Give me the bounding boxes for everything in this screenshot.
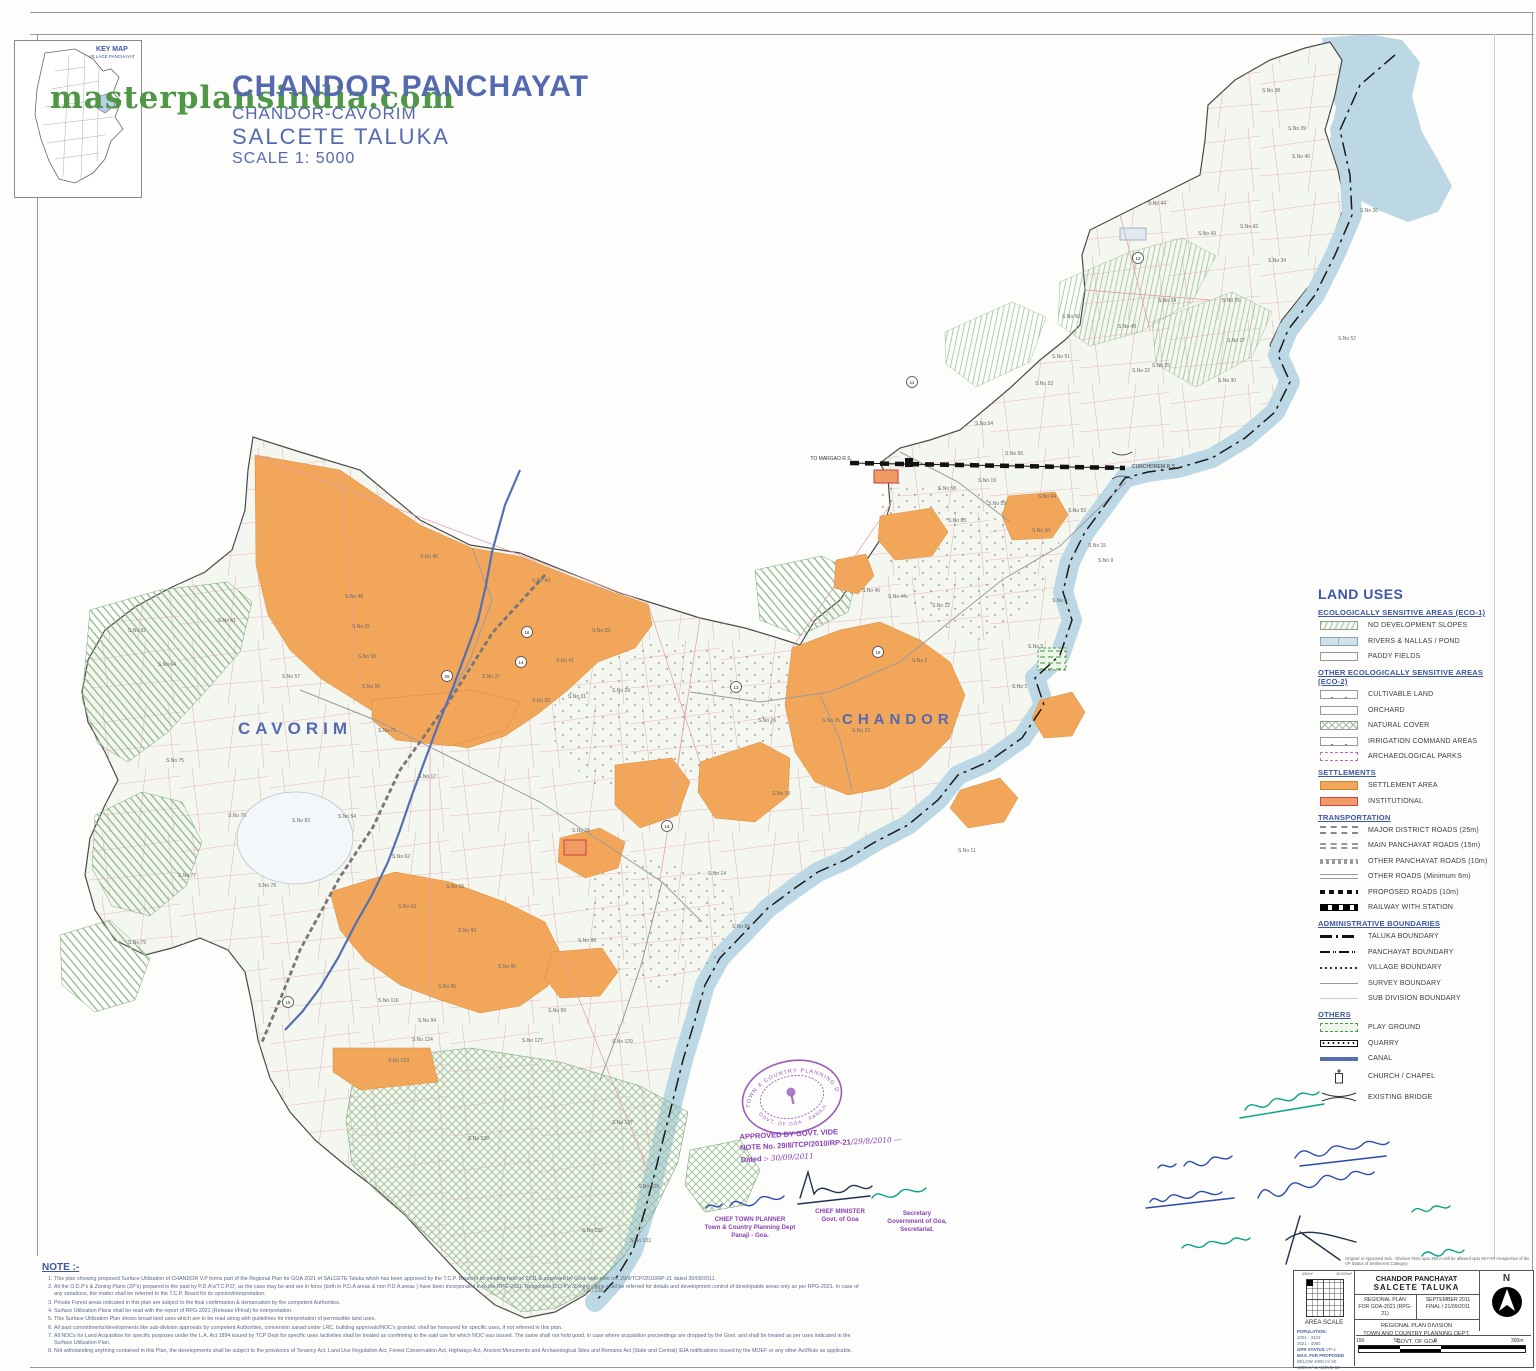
bridge-swatch bbox=[1320, 1089, 1358, 1105]
legend-item-label: IRRIGATION COMMAND AREAS bbox=[1368, 738, 1477, 745]
survey-label: S.No 92 bbox=[128, 628, 146, 634]
legend-item: ARCHAEOLOGICAL PARKS bbox=[1320, 751, 1490, 762]
survey-label: S.No 129 bbox=[612, 1039, 633, 1045]
survey-label: S.No 23 bbox=[852, 728, 870, 734]
legend-item: QUARRY bbox=[1320, 1038, 1490, 1049]
area-scale-cell: 400m² 10,000m² AREA SCALE POPULATION: 20… bbox=[1294, 1271, 1355, 1366]
panchayat-swatch bbox=[1320, 951, 1358, 953]
survey-label: S.No 26 bbox=[1222, 298, 1240, 304]
survey-label: S.No 42 bbox=[1240, 224, 1258, 230]
survey-label: S.No 98 bbox=[578, 938, 596, 944]
north-arrow-cell: N bbox=[1479, 1271, 1533, 1331]
sheet-header: CHANDOR PANCHAYAT CHANDOR-CAVORIM SALCET… bbox=[232, 70, 589, 168]
survey-label: S.No 55 bbox=[352, 624, 370, 630]
legend-item-label: EXISTING BRIDGE bbox=[1368, 1094, 1432, 1101]
map-label: 16 bbox=[664, 824, 670, 829]
survey-label: S.No 39 bbox=[592, 628, 610, 634]
legend-section-heading: OTHER ECOLOGICALLY SENSITIVE AREAS (ECO-… bbox=[1318, 668, 1490, 686]
survey-label: S.No 63 bbox=[398, 904, 416, 910]
note-item: All past commitments/developments like s… bbox=[54, 1325, 862, 1332]
survey-label: S.No 23 bbox=[1035, 381, 1053, 387]
tb-taluka-name: SALCETE TALUKA bbox=[1354, 1283, 1479, 1292]
survey-label: S.No 10 bbox=[1032, 528, 1050, 534]
legend-title: LAND USES bbox=[1318, 586, 1490, 602]
cultivable-swatch bbox=[1320, 690, 1358, 699]
legend-item-label: ARCHAEOLOGICAL PARKS bbox=[1368, 753, 1462, 760]
survey-label: S.No 53 bbox=[1068, 508, 1086, 514]
survey-label: S.No 78 bbox=[258, 883, 276, 889]
legend-item-label: SETTLEMENT AREA bbox=[1368, 782, 1438, 789]
survey-label: S.No 32 bbox=[1132, 368, 1150, 374]
legend-item: ORCHARD bbox=[1320, 705, 1490, 716]
stamp-emblem bbox=[786, 1087, 798, 1105]
note-item: This plan showing proposed Surface Utili… bbox=[54, 1276, 862, 1283]
survey-label: S.No 54 bbox=[338, 814, 356, 820]
survey-label: S.No 94 bbox=[418, 1018, 436, 1024]
opr-swatch bbox=[1320, 859, 1358, 864]
legend-item-label: NATURAL COVER bbox=[1368, 722, 1429, 729]
scale-bar: 150 50 0 300m bbox=[1356, 1335, 1531, 1366]
survey-label: S.No 63 bbox=[948, 518, 966, 524]
legend-item-label: SUB DIVISION BOUNDARY bbox=[1368, 995, 1461, 1002]
signature bbox=[1158, 1156, 1232, 1168]
survey-label: S.No 86 bbox=[732, 924, 750, 930]
title-block-note: Original or Approved Sub - Division Plot… bbox=[1345, 1256, 1531, 1267]
railway-station-marker bbox=[905, 458, 913, 467]
survey-label: S.No 30 bbox=[1218, 378, 1236, 384]
survey-label: S.No 52 bbox=[1338, 336, 1356, 342]
signature bbox=[1258, 1171, 1374, 1198]
legend-item-label: ORCHARD bbox=[1368, 707, 1405, 714]
sheet-border-top2 bbox=[30, 34, 1534, 35]
survey-label: S.No 16 bbox=[446, 884, 464, 890]
signature bbox=[1240, 1092, 1324, 1118]
note-item: Private Forest areas indicated in this p… bbox=[54, 1300, 862, 1307]
sheet-inner-right bbox=[1494, 34, 1495, 1258]
key-map-subtitle: VILLAGE PANCHAYAT bbox=[89, 54, 135, 59]
sheet-border-top bbox=[30, 12, 1534, 13]
survey-label: S.No 29 bbox=[612, 688, 630, 694]
survey-label: S.No 56 bbox=[362, 684, 380, 690]
settlement-swatch bbox=[1320, 781, 1358, 790]
proposed-swatch bbox=[1320, 890, 1358, 894]
survey-label: S.No 90 bbox=[498, 964, 516, 970]
survey-label: S.No 56 bbox=[1005, 451, 1023, 457]
village-swatch bbox=[1320, 967, 1358, 969]
legend-section: TRANSPORTATIONMAJOR DISTRICT ROADS (25m)… bbox=[1318, 813, 1490, 914]
legend-section: OTHER ECOLOGICALLY SENSITIVE AREAS (ECO-… bbox=[1318, 668, 1490, 762]
survey-label: S.No 71 bbox=[378, 728, 396, 734]
north-arrow-icon bbox=[1489, 1284, 1525, 1320]
pond bbox=[237, 792, 353, 884]
signature-caption-line: Secretariat. bbox=[862, 1226, 972, 1234]
legend-item: PROPOSED ROADS (10m) bbox=[1320, 887, 1490, 898]
legend-item: RAILWAY WITH STATION bbox=[1320, 902, 1490, 913]
survey-label: S.No 76 bbox=[228, 813, 246, 819]
survey-label: S.No 51 bbox=[1052, 354, 1070, 360]
paddy-swatch bbox=[1320, 652, 1358, 661]
legend-section-heading: ADMINISTRATIVE BOUNDARIES bbox=[1318, 919, 1490, 928]
subdiv-swatch bbox=[1320, 998, 1358, 999]
legend-item: RIVERS & NALLAS / POND bbox=[1320, 636, 1490, 647]
survey-label: S.No 139 bbox=[638, 1184, 659, 1190]
map-label: 11 bbox=[910, 380, 915, 385]
key-map: KEY MAP VILLAGE PANCHAYAT bbox=[14, 40, 142, 198]
map-label: 16 bbox=[524, 630, 530, 635]
survey-label: S.No 15 bbox=[572, 828, 590, 834]
survey-label: S.No 58 bbox=[938, 486, 956, 492]
quarry-swatch bbox=[1320, 1040, 1358, 1047]
orchard-swatch bbox=[1320, 706, 1358, 715]
survey-label: S.No 79 bbox=[128, 940, 146, 946]
legend-item: OTHER PANCHAYAT ROADS (10m) bbox=[1320, 856, 1490, 867]
survey-label: S.No 83 bbox=[292, 818, 310, 824]
legend-item: SURVEY BOUNDARY bbox=[1320, 978, 1490, 989]
tb-plan: REGIONAL PLANFOR GOA-2021 (RPG-21) bbox=[1354, 1295, 1417, 1319]
survey-label: S.No 8 bbox=[1052, 598, 1068, 604]
survey-label: S.No 133 bbox=[630, 1238, 651, 1244]
map-label: 14 bbox=[518, 660, 524, 665]
survey-label: S.No 15 bbox=[1088, 543, 1106, 549]
legend-item: PLAY GROUND bbox=[1320, 1022, 1490, 1033]
key-map-title: KEY MAP bbox=[89, 46, 135, 54]
map-label: CURCHOREM R.S. bbox=[1132, 464, 1176, 470]
natural-swatch bbox=[1320, 721, 1358, 730]
legend-item-label: TALUKA BOUNDARY bbox=[1368, 933, 1439, 940]
survey-label: S.No 44 bbox=[1148, 201, 1166, 207]
survey-label: S.No 2 bbox=[912, 658, 928, 664]
legend-item-label: PANCHAYAT BOUNDARY bbox=[1368, 949, 1454, 956]
legend-item: VILLAGE BOUNDARY bbox=[1320, 962, 1490, 973]
survey-label: S.No 62 bbox=[392, 854, 410, 860]
legend-item-label: QUARRY bbox=[1368, 1040, 1399, 1047]
playground-swatch bbox=[1320, 1023, 1358, 1032]
legend-item-label: OTHER ROADS (Minimum 6m) bbox=[1368, 873, 1471, 880]
survey-label: S.No 50 bbox=[1062, 314, 1080, 320]
slopes-swatch bbox=[1320, 621, 1358, 630]
survey-label: S.No 99 bbox=[548, 1008, 566, 1014]
survey-label: S.No 26 bbox=[758, 718, 776, 724]
legend-item-label: SURVEY BOUNDARY bbox=[1368, 980, 1441, 987]
legend-item: MAJOR DISTRICT ROADS (25m) bbox=[1320, 825, 1490, 836]
survey-label: S.No 44 bbox=[888, 594, 906, 600]
survey-label: S.No 33 bbox=[532, 698, 550, 704]
legend-item: SUB DIVISION BOUNDARY bbox=[1320, 993, 1490, 1004]
signature bbox=[1146, 1191, 1234, 1208]
legend-item-label: OTHER PANCHAYAT ROADS (10m) bbox=[1368, 858, 1488, 865]
survey-label: S.No 37 bbox=[482, 674, 500, 680]
legend-item-label: PROPOSED ROADS (10m) bbox=[1368, 889, 1459, 896]
title-block: Original or Approved Sub - Division Plot… bbox=[1293, 1256, 1533, 1368]
survey-label: S.No 9 bbox=[1098, 558, 1114, 564]
legend-item-label: VILLAGE BOUNDARY bbox=[1368, 964, 1442, 971]
legend-section: OTHERSPLAY GROUNDQUARRYCANALCHURCH / CHA… bbox=[1318, 1010, 1490, 1105]
sheet-border-right bbox=[1532, 12, 1533, 1368]
survey-label: S.No 11 bbox=[958, 848, 976, 854]
map-label: 29 bbox=[444, 674, 450, 679]
signature bbox=[798, 1172, 872, 1204]
north-label: N bbox=[1480, 1273, 1533, 1284]
note-item: All the O.D.P's & Zoning Plans (ZP's) pr… bbox=[54, 1284, 862, 1298]
village-label-chandor: CHANDOR bbox=[842, 711, 954, 728]
legend: LAND USES ECOLOGICALLY SENSITIVE AREAS (… bbox=[1318, 586, 1490, 1110]
legend-item: SETTLEMENT AREA bbox=[1320, 780, 1490, 791]
map-label: TO MARGAO R.S. bbox=[810, 456, 852, 462]
railway-swatch bbox=[1320, 904, 1358, 911]
survey-label: S.No 43 bbox=[532, 578, 550, 584]
legend-item: INSTITUTIONAL bbox=[1320, 796, 1490, 807]
area-scale-label: AREA SCALE bbox=[1294, 1319, 1354, 1326]
legend-item-label: INSTITUTIONAL bbox=[1368, 798, 1423, 805]
survey-label: S.No 34 bbox=[1268, 258, 1286, 264]
arch-swatch bbox=[1320, 752, 1358, 761]
survey-label: S.No 54 bbox=[975, 421, 993, 427]
legend-item: EXISTING BRIDGE bbox=[1320, 1089, 1490, 1105]
survey-label: S.No 137 bbox=[612, 1120, 633, 1126]
notes-title: NOTE :- bbox=[42, 1262, 862, 1273]
scanned-plan-sheet: { "watermark": "masterplansindia.com", "… bbox=[0, 0, 1536, 1370]
legend-item: CANAL bbox=[1320, 1053, 1490, 1064]
legend-item-label: MAIN PANCHAYAT ROADS (15m) bbox=[1368, 842, 1480, 849]
survey-label: S.No 123 bbox=[388, 1058, 409, 1064]
signature-caption-line: Government of Goa, bbox=[862, 1218, 972, 1226]
legend-section-heading: ECOLOGICALLY SENSITIVE AREAS (ECO-1) bbox=[1318, 608, 1490, 617]
water-swatch bbox=[1320, 637, 1358, 646]
note-item: Surface Utilization Plans shall be read … bbox=[54, 1308, 862, 1315]
survey-label: S.No 39 bbox=[1288, 126, 1306, 132]
survey-label: S.No 61 bbox=[218, 618, 236, 624]
survey-label: S.No 25 bbox=[822, 718, 840, 724]
signature bbox=[1422, 1249, 1464, 1256]
map-label: 12 bbox=[1135, 256, 1141, 261]
survey-label: S.No 48 bbox=[345, 594, 363, 600]
area-scale-min: 400m² bbox=[1302, 1272, 1313, 1276]
legend-item: PANCHAYAT BOUNDARY bbox=[1320, 947, 1490, 958]
plan-title: CHANDOR PANCHAYAT bbox=[232, 70, 589, 104]
survey-label: S.No 93 bbox=[458, 928, 476, 934]
survey-label: S.No 24 bbox=[1158, 298, 1176, 304]
survey-label: S.No 38 bbox=[1262, 88, 1280, 94]
legend-item: IRRIGATION COMMAND AREAS bbox=[1320, 736, 1490, 747]
legend-item: MAIN PANCHAYAT ROADS (15m) bbox=[1320, 840, 1490, 851]
survey-label: S.No 64 bbox=[158, 662, 176, 668]
survey-label: S.No 64 bbox=[1038, 494, 1056, 500]
legend-section: ECOLOGICALLY SENSITIVE AREAS (ECO-1)NO D… bbox=[1318, 608, 1490, 662]
legend-section: SETTLEMENTSSETTLEMENT AREAINSTITUTIONAL bbox=[1318, 768, 1490, 807]
notes-block: NOTE :- This plan showing proposed Surfa… bbox=[42, 1262, 862, 1357]
legend-item: NO DEVELOPMENT SLOPES bbox=[1320, 620, 1490, 631]
tb-date: SEPTEMBER 2011FINAL / 21/09/2011 bbox=[1417, 1295, 1479, 1319]
survey-label: S.No 58 bbox=[358, 654, 376, 660]
signature-caption-line: Secretary bbox=[862, 1210, 972, 1218]
scale-bar-graphic bbox=[1358, 1345, 1526, 1353]
panchayat-stats: POPULATION: 2001 - 3423 2021 - 4080 GPR … bbox=[1297, 1329, 1353, 1371]
signature bbox=[1412, 1206, 1450, 1212]
note-item: Not withstanding anything contained in t… bbox=[54, 1348, 862, 1355]
survey-label: S.No 57 bbox=[282, 674, 300, 680]
legend-item: OTHER ROADS (Minimum 6m) bbox=[1320, 871, 1490, 882]
survey-label: S.No 124 bbox=[412, 1037, 433, 1043]
signature-caption-secretary: SecretaryGovernment of Goa,Secretariat. bbox=[862, 1210, 972, 1233]
survey-label: S.No 19 bbox=[978, 478, 996, 484]
survey-label: S.No 59 bbox=[988, 501, 1006, 507]
legend-item: CHURCH / CHAPEL bbox=[1320, 1069, 1490, 1085]
legend-section-heading: TRANSPORTATION bbox=[1318, 813, 1490, 822]
legend-item: PADDY FIELDS bbox=[1320, 651, 1490, 662]
signature bbox=[872, 1188, 926, 1198]
signature-caption-line: Town & Country Planning Dept bbox=[690, 1224, 810, 1232]
legend-item-label: CULTIVABLE LAND bbox=[1368, 691, 1433, 698]
institutional-swatch bbox=[1320, 797, 1358, 806]
survey-label: S.No 49 bbox=[1118, 324, 1136, 330]
survey-label: S.No 43 bbox=[1198, 231, 1216, 237]
survey-label: S.No 17 bbox=[418, 774, 436, 780]
church-swatch bbox=[1320, 1069, 1358, 1085]
survey-label: S.No 77 bbox=[178, 873, 196, 879]
legend-item-label: RAILWAY WITH STATION bbox=[1368, 904, 1453, 911]
legend-item: NATURAL COVER bbox=[1320, 720, 1490, 731]
sheet-border-left bbox=[37, 34, 38, 1256]
signature bbox=[1182, 1238, 1250, 1248]
survey-label: S.No 75 bbox=[166, 758, 184, 764]
legend-section-heading: OTHERS bbox=[1318, 1010, 1490, 1019]
key-map-outline bbox=[15, 41, 139, 195]
legend-section-heading: SETTLEMENTS bbox=[1318, 768, 1490, 777]
plan-taluka: SALCETE TALUKA bbox=[232, 125, 589, 150]
area-scale-grid bbox=[1306, 1279, 1344, 1317]
survey-label: S.No 45 bbox=[420, 554, 438, 560]
legend-item-label: NO DEVELOPMENT SLOPES bbox=[1368, 622, 1467, 629]
signature-caption-line: Panaji - Goa. bbox=[690, 1232, 810, 1240]
survey-label: S.No 12 bbox=[932, 603, 950, 609]
signatures bbox=[706, 1092, 1464, 1264]
survey-label: S.No 46 bbox=[862, 588, 880, 594]
signature bbox=[1295, 1141, 1389, 1166]
survey-label: S.No 116 bbox=[378, 998, 399, 1004]
legend-item-label: PADDY FIELDS bbox=[1368, 653, 1420, 660]
survey-label: S.No 36 bbox=[1360, 208, 1378, 214]
taluka-swatch bbox=[1320, 935, 1358, 938]
note-item: All NOCs for Land Acquisition for specif… bbox=[54, 1333, 862, 1347]
survey-label: S.No 25 bbox=[1152, 363, 1170, 369]
mpr-swatch bbox=[1320, 843, 1358, 849]
map-label: 18 bbox=[875, 650, 881, 655]
legend-item-label: PLAY GROUND bbox=[1368, 1024, 1421, 1031]
map-label: 13 bbox=[733, 685, 739, 690]
legend-item: CULTIVABLE LAND bbox=[1320, 689, 1490, 700]
survey-label: S.No 27 bbox=[1227, 338, 1245, 344]
survey-label: S.No 40 bbox=[1292, 154, 1310, 160]
survey-label: S.No 18 bbox=[772, 791, 790, 797]
plan-map-canvas: S.No 92S.No 64S.No 61S.No 57S.No 55S.No … bbox=[0, 0, 1536, 1370]
legend-item-label: MAJOR DISTRICT ROADS (25m) bbox=[1368, 827, 1479, 834]
survey-label: S.No 130 bbox=[582, 1228, 603, 1234]
legend-item: TALUKA BOUNDARY bbox=[1320, 931, 1490, 942]
map-label: 15 bbox=[285, 1000, 291, 1005]
mdr-swatch bbox=[1320, 826, 1358, 834]
legend-item-label: CHURCH / CHAPEL bbox=[1368, 1073, 1435, 1080]
area-scale-max: 10,000m² bbox=[1336, 1272, 1352, 1276]
survey-label: S.No 1 bbox=[1012, 684, 1028, 690]
plan-subtitle: CHANDOR-CAVORIM bbox=[232, 104, 589, 123]
irrigation-swatch bbox=[1320, 737, 1358, 746]
survey-label: S.No 127 bbox=[522, 1038, 543, 1044]
survey-label: S.No 31 bbox=[568, 694, 586, 700]
survey-label: S.No 41 bbox=[556, 658, 574, 664]
other-swatch bbox=[1320, 874, 1358, 879]
survey-label: S.No 128 bbox=[468, 1136, 489, 1142]
legend-item-label: CANAL bbox=[1368, 1055, 1392, 1062]
tb-panchayat-name: CHANDOR PANCHAYAT bbox=[1354, 1274, 1479, 1283]
legend-section: ADMINISTRATIVE BOUNDARIESTALUKA BOUNDARY… bbox=[1318, 919, 1490, 1004]
legend-item-label: RIVERS & NALLAS / POND bbox=[1368, 638, 1460, 645]
survey-label: S.No 14 bbox=[708, 871, 726, 877]
canal-swatch bbox=[1320, 1057, 1358, 1061]
plan-scale: SCALE 1: 5000 bbox=[232, 150, 589, 168]
note-item: This Surface Utilization Plan shows broa… bbox=[54, 1316, 862, 1323]
survey-label: S.No 95 bbox=[438, 984, 456, 990]
survey-label: S.No 5 bbox=[1028, 644, 1044, 650]
village-label-cavorim: CAVORIM bbox=[238, 719, 352, 738]
survey-swatch bbox=[1320, 983, 1358, 984]
